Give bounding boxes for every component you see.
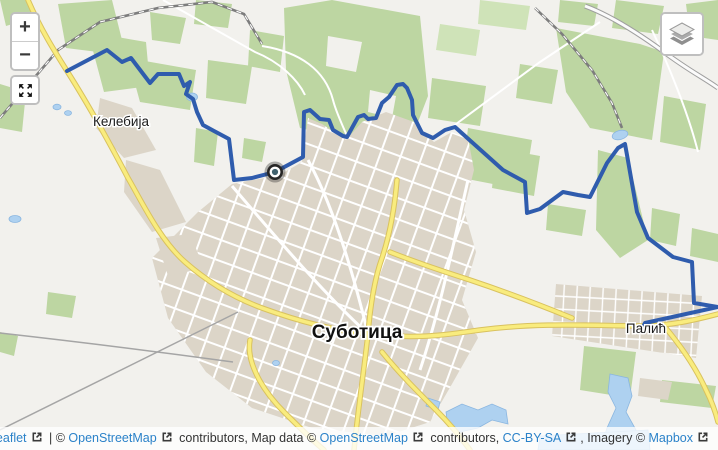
attribution-text: contributors, Map data ©	[176, 431, 320, 446]
layers-control	[660, 12, 704, 56]
attribution: Leaflet | © OpenStreetMap contributors, …	[0, 427, 718, 450]
external-link-icon	[31, 431, 43, 447]
attribution-link[interactable]: Leaflet	[0, 431, 27, 446]
attribution-text: , Imagery ©	[580, 431, 648, 446]
external-link-icon	[412, 431, 424, 447]
place-label: Келебија	[93, 114, 149, 129]
zoom-out-button[interactable]: −	[12, 41, 38, 69]
external-link-icon	[161, 431, 173, 447]
attribution-text: contributors,	[427, 431, 503, 446]
fullscreen-control	[10, 75, 40, 105]
place-label: Суботица	[312, 322, 403, 343]
zoom-in-button[interactable]: +	[12, 14, 38, 41]
fullscreen-button[interactable]	[12, 77, 38, 103]
place-label: Палић	[626, 321, 666, 336]
map-tiles: КелебијаСуботицаПалић	[0, 0, 718, 450]
layers-icon	[669, 21, 695, 47]
layers-button[interactable]	[662, 14, 702, 54]
map-canvas[interactable]: КелебијаСуботицаПалић + − Leaflet | © Op…	[0, 0, 718, 450]
attribution-link[interactable]: CC-BY-SA	[503, 431, 562, 446]
attribution-link[interactable]: Mapbox	[649, 431, 693, 446]
fullscreen-icon	[17, 82, 34, 99]
attribution-text: | ©	[46, 431, 69, 446]
route-marker[interactable]	[265, 162, 286, 183]
external-link-icon	[565, 431, 577, 447]
zoom-control: + −	[10, 12, 40, 71]
attribution-link[interactable]: OpenStreetMap	[68, 431, 156, 446]
attribution-link[interactable]: OpenStreetMap	[320, 431, 408, 446]
external-link-icon	[697, 431, 709, 447]
